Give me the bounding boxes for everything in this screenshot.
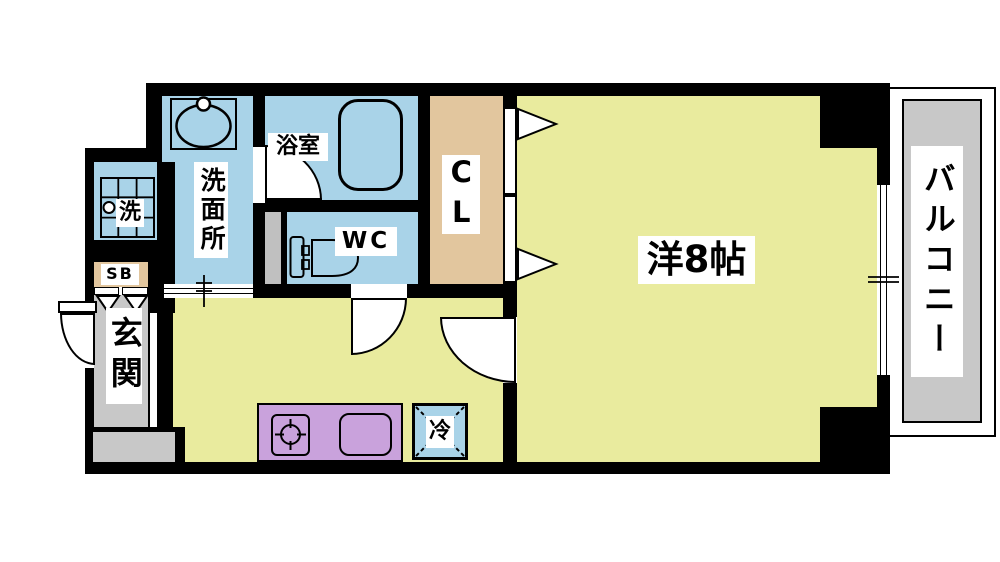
sink-faucet-icon bbox=[197, 98, 210, 111]
label-washer: 洗 bbox=[116, 199, 144, 227]
label-entrance: 玄関 bbox=[106, 308, 142, 404]
label-shoe-box: SB bbox=[101, 264, 139, 285]
label-balcony: バルコニー bbox=[911, 146, 963, 377]
label-closet: CL bbox=[442, 155, 480, 234]
washer-drain-icon bbox=[104, 202, 115, 213]
label-bathroom: 浴室 bbox=[268, 133, 328, 161]
toilet-tank-icon bbox=[291, 237, 304, 277]
closet-door-triangle-icon bbox=[518, 249, 556, 279]
closet-door-triangle-icon bbox=[518, 109, 556, 139]
label-wc: WC bbox=[335, 227, 397, 256]
label-refrigerator: 冷 bbox=[426, 416, 454, 448]
label-western-room: 洋8帖 bbox=[638, 236, 755, 284]
symbol-overlay bbox=[0, 0, 1000, 562]
label-washroom: 洗面所 bbox=[194, 162, 228, 258]
floor-plan-canvas: 浴室 洗面所 WC CL 洋8帖 バルコニー 玄関 SB 洗 冷 bbox=[0, 0, 1000, 562]
